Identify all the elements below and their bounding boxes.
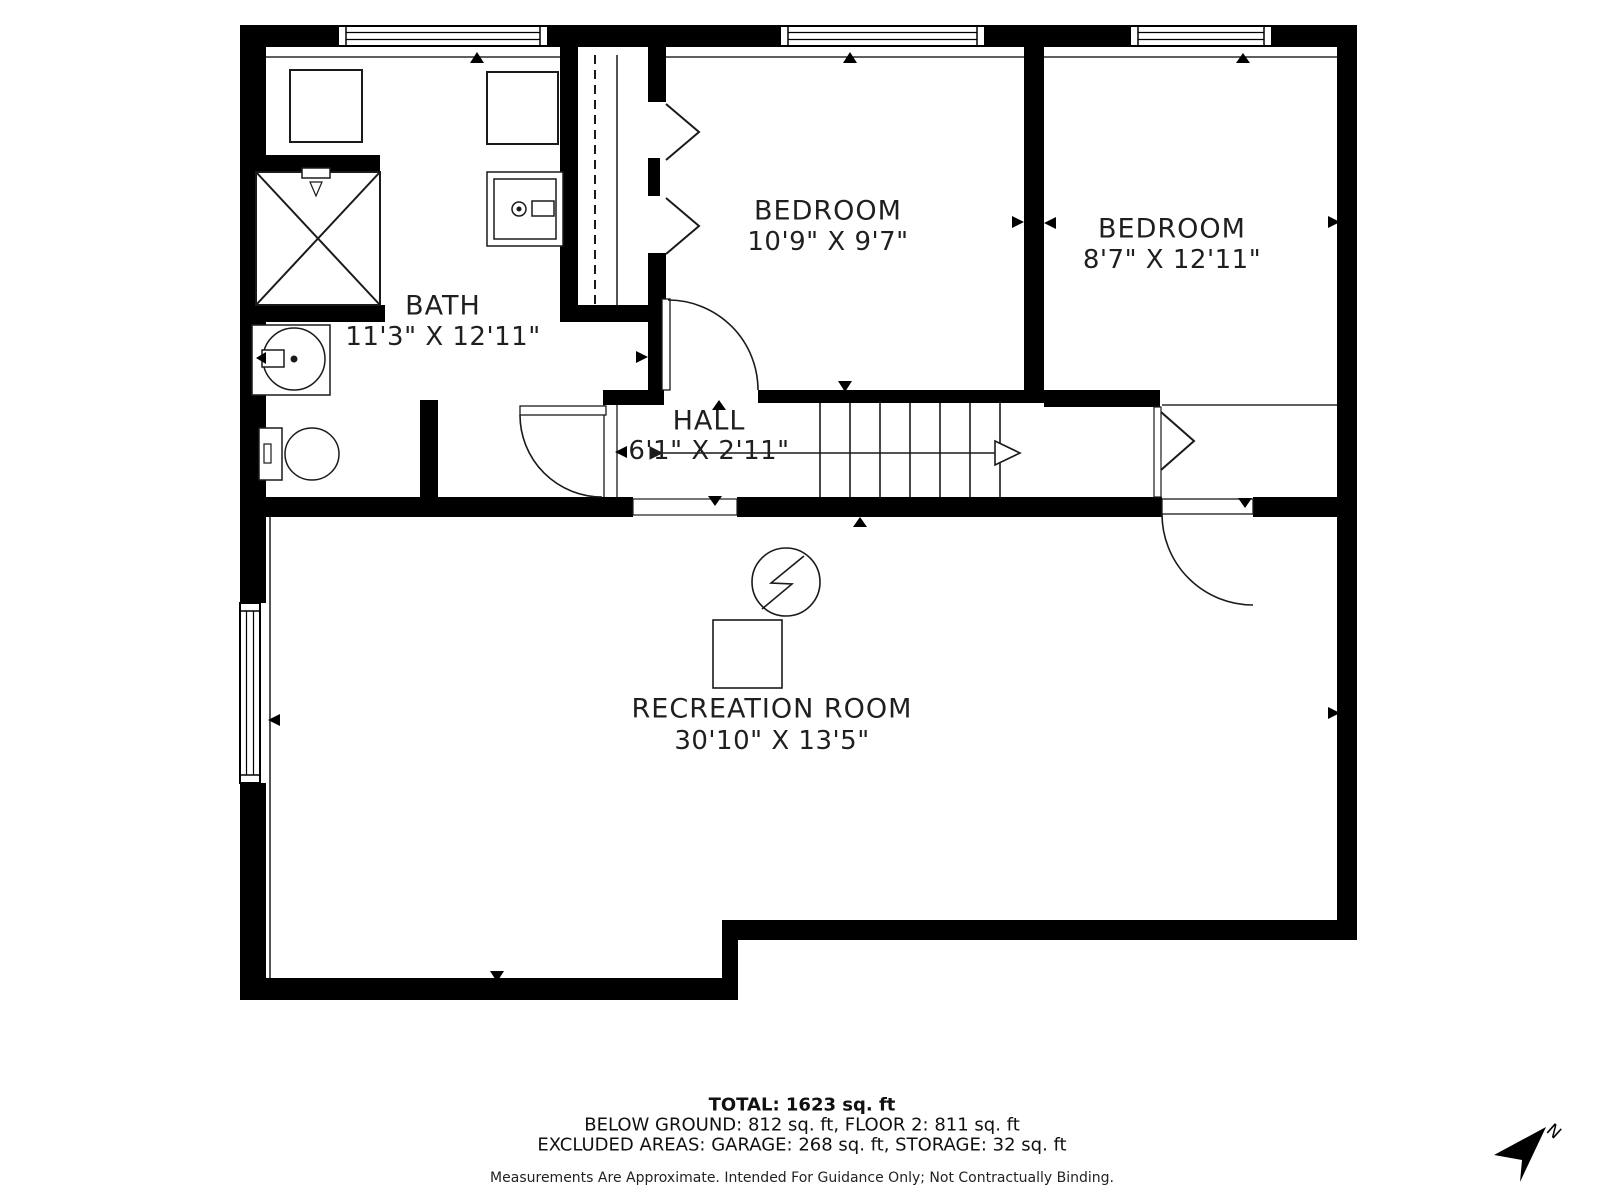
bifold-door-icon bbox=[1154, 407, 1194, 497]
floor-areas-text: BELOW GROUND: 812 sq. ft, FLOOR 2: 811 s… bbox=[584, 1115, 1020, 1136]
room-dims-bath: 11'3" X 12'11" bbox=[345, 322, 540, 352]
north-arrow: N bbox=[1494, 1120, 1565, 1182]
sink-icon bbox=[487, 172, 563, 246]
room-label-bedroom2: BEDROOM bbox=[1098, 214, 1246, 245]
swing-door-icon bbox=[520, 405, 617, 497]
room-dims-hall: 6'1" X 2'11" bbox=[628, 436, 789, 466]
room-dims-bedroom1: 10'9" X 9'7" bbox=[747, 227, 908, 257]
bifold-door-icon bbox=[666, 198, 699, 254]
window-icon bbox=[780, 26, 985, 46]
electrical-panel-icon bbox=[752, 548, 820, 616]
room-dims-bedroom2: 8'7" X 12'11" bbox=[1083, 245, 1261, 275]
floor-plan-page: N BATH 11'3" X 12'11" BEDROOM 10'9" X 9'… bbox=[0, 0, 1600, 1200]
toilet-icon bbox=[259, 428, 339, 480]
utility-fixtures bbox=[713, 548, 820, 688]
hall-opening-threshold bbox=[633, 499, 737, 515]
floor-plan-drawing: N bbox=[0, 0, 1600, 1200]
room-label-bedroom1: BEDROOM bbox=[754, 196, 902, 227]
disclaimer-text: Measurements Are Approximate. Intended F… bbox=[490, 1170, 1114, 1186]
shower-icon bbox=[256, 168, 380, 305]
furnace-icon bbox=[713, 620, 782, 688]
total-area-text: TOTAL: 1623 sq. ft bbox=[709, 1095, 896, 1116]
window-icon bbox=[338, 26, 548, 46]
room-label-recreation: RECREATION ROOM bbox=[632, 694, 913, 725]
swing-door-icon bbox=[1162, 499, 1253, 605]
room-label-bath: BATH bbox=[405, 291, 481, 322]
window-icon bbox=[1130, 26, 1272, 46]
room-label-hall: HALL bbox=[673, 406, 746, 437]
bath-fixtures bbox=[252, 70, 563, 480]
bifold-door-icon bbox=[666, 104, 699, 160]
north-label: N bbox=[1542, 1120, 1565, 1143]
window-icon bbox=[240, 603, 260, 783]
excluded-areas-text: EXCLUDED AREAS: GARAGE: 268 sq. ft, STOR… bbox=[537, 1135, 1066, 1156]
closet bbox=[595, 55, 699, 305]
swing-door-icon bbox=[662, 299, 758, 390]
room-dims-recreation: 30'10" X 13'5" bbox=[674, 726, 869, 756]
washer-icon bbox=[290, 70, 362, 142]
dryer-icon bbox=[487, 72, 558, 144]
